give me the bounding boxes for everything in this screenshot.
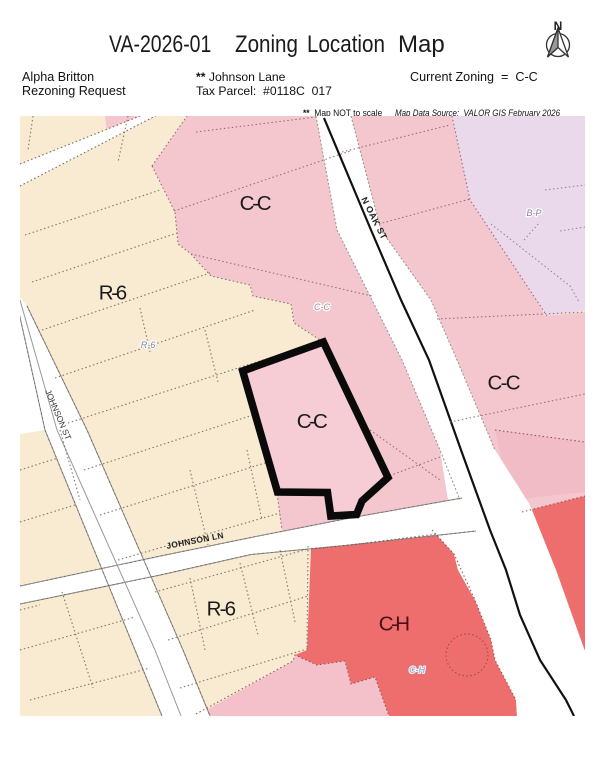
- svg-text:N: N: [554, 19, 563, 33]
- svg-text:C-C: C-C: [314, 302, 330, 312]
- svg-text:R-6: R-6: [207, 598, 236, 621]
- svg-text:R-6: R-6: [99, 282, 127, 305]
- svg-text:C-H: C-H: [379, 612, 410, 635]
- svg-text:C-C: C-C: [240, 192, 272, 215]
- svg-text:C-C: C-C: [488, 372, 521, 395]
- svg-text:R-6: R-6: [141, 340, 156, 350]
- svg-text:B-P: B-P: [526, 208, 541, 218]
- svg-text:C-C: C-C: [297, 410, 328, 433]
- svg-text:C-H: C-H: [409, 665, 425, 675]
